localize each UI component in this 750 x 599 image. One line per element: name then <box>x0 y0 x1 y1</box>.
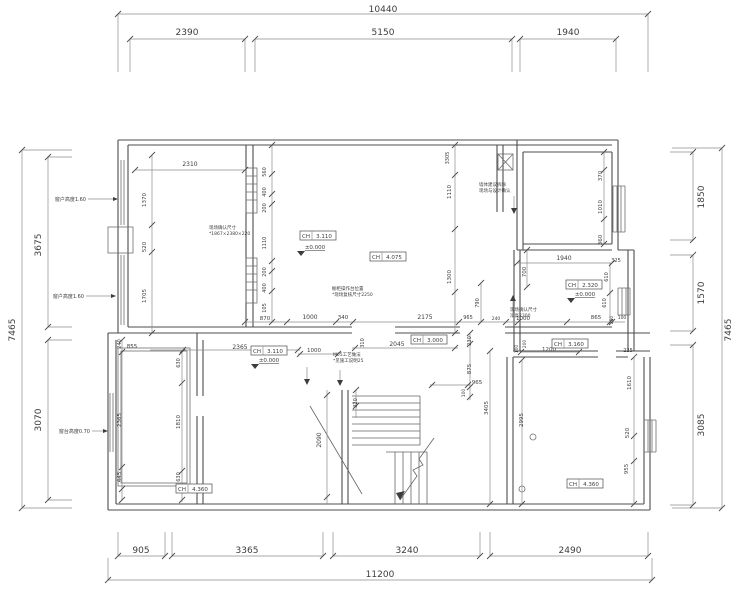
ch-label-prefix: CH <box>253 349 261 355</box>
dim-label: 790 <box>475 298 481 308</box>
dim-label: 1110 <box>262 237 268 250</box>
ch-label-value: 3.110 <box>316 234 332 240</box>
dim-label: 1850 <box>697 185 707 208</box>
dim-label: 610 <box>604 272 610 282</box>
dim-label: 1300 <box>447 270 453 284</box>
callout-text: 窗户高度1.60 <box>53 293 84 300</box>
level-mark-text: ±0.000 <box>259 358 280 364</box>
dim-label: 905 <box>132 546 149 556</box>
dim-label: 520 <box>142 241 148 252</box>
note-text: 墙体建议拆除 <box>479 181 506 188</box>
dim-label: 360 <box>598 234 604 245</box>
dim-label: 7465 <box>8 319 18 342</box>
dim-label: 855 <box>127 344 138 350</box>
callout-text: 窗户高度1.60 <box>55 196 86 203</box>
note-text: *见施工说明25 <box>333 357 364 364</box>
dim-label: 560 <box>262 167 268 177</box>
window-lines <box>110 160 656 452</box>
dim-label: 3085 <box>697 414 707 437</box>
note-text: 现场确认尺寸 <box>510 306 537 313</box>
dim-label: 870 <box>260 316 271 322</box>
dim-label: 7465 <box>724 319 734 342</box>
dim-label: 400 <box>262 187 268 197</box>
dim-label: 2490 <box>559 546 582 556</box>
dim-label: 965 <box>472 380 483 386</box>
dim-label: 3305 <box>445 152 451 165</box>
callout-text: 窗台高度0.70 <box>59 428 90 435</box>
note-text: 橱柜操作台位置 <box>332 285 364 292</box>
dim-label: 325 <box>611 258 621 264</box>
ceiling-height-labels-layer: CH3.110CH4.075CH2.320CH3.000CH3.110CH3.1… <box>176 231 603 493</box>
dim-label: 1370 <box>142 193 148 207</box>
flue-box-bottom <box>246 258 257 303</box>
ch-label-value: 3.160 <box>568 342 584 348</box>
notes-layer: 现场确认尺寸*1867×2380×220橱柜操作台位置*现场复核尺寸2250墙体… <box>209 181 537 364</box>
dim-label: 310 <box>360 338 366 348</box>
floor-plan-svg: 1044023905150194090533653240249011200746… <box>0 0 750 599</box>
dim-label: 200 <box>262 203 268 213</box>
ch-label-prefix: CH <box>372 255 380 261</box>
dim-label: 100 <box>514 345 520 354</box>
dim-label: 875 <box>467 363 473 374</box>
ch-label-prefix: CH <box>413 338 421 344</box>
dim-label: 2365 <box>117 413 123 427</box>
dim-label: 320 <box>353 398 359 408</box>
level-mark-text: ±0.000 <box>575 292 596 298</box>
dim-label: 2090 <box>316 432 323 447</box>
windows-layer <box>108 154 656 492</box>
dim-label: 2045 <box>389 341 404 348</box>
dim-label: 630 <box>176 472 182 482</box>
shaft-cross <box>498 154 513 170</box>
level-mark-text: ±0.000 <box>305 245 326 251</box>
dim-label: 1940 <box>556 255 571 262</box>
dim-label: 2995 <box>519 413 525 427</box>
dim-label: 3240 <box>396 546 419 556</box>
dim-label: 2175 <box>417 314 432 321</box>
dim-label: 225 <box>623 348 633 354</box>
dim-label: 105 <box>262 303 268 313</box>
note-text: M05工艺做法 <box>333 351 361 358</box>
note-text: *1867×2380×220 <box>209 231 250 237</box>
dim-label: 1000 <box>302 314 317 321</box>
ch-label-prefix: CH <box>569 482 577 488</box>
dim-label: 610 <box>602 298 608 308</box>
dim-label: 865 <box>591 315 602 321</box>
dim-label: 100 <box>461 389 467 398</box>
dim-label: 3675 <box>34 234 44 257</box>
dim-label: 700 <box>522 266 528 277</box>
dim-label: 2390 <box>176 28 199 38</box>
dim-label: 3365 <box>236 546 259 556</box>
dim-label: 200 <box>262 267 268 277</box>
ch-label-value: 3.110 <box>267 349 283 355</box>
pier-box <box>108 227 133 253</box>
level-mark-triangle <box>567 298 575 303</box>
note-text: 现场与设计确认 <box>479 187 511 194</box>
dim-label: 200 <box>522 340 528 349</box>
ch-label-value: 4.360 <box>583 482 599 488</box>
stair-treads <box>310 396 434 504</box>
dim-label: 445 <box>117 471 123 482</box>
note-text: 净高2300 <box>510 312 531 319</box>
dim-label: 1570 <box>697 281 707 304</box>
callout-arrowhead <box>111 294 116 298</box>
ch-label-value: 4.075 <box>386 255 402 261</box>
dim-label: 1610 <box>627 376 633 390</box>
dim-label: 100 <box>618 315 627 321</box>
dim-label: 1000 <box>307 348 321 354</box>
wall-lines <box>108 140 650 510</box>
callout-arrowhead <box>103 429 108 433</box>
ch-label-value: 2.320 <box>582 283 598 289</box>
dim-label: 5150 <box>372 28 395 38</box>
floor-plan-page: 1044023905150194090533653240249011200746… <box>0 0 750 599</box>
ch-label-prefix: CH <box>302 234 310 240</box>
staircase <box>310 396 434 504</box>
ch-label-value: 3.000 <box>427 338 443 344</box>
down-arrowhead <box>337 380 343 386</box>
ch-label-value: 4.360 <box>192 487 208 493</box>
dim-label: 240 <box>492 316 501 322</box>
note-text: *现场复核尺寸2250 <box>332 291 373 298</box>
dim-label: 630 <box>176 358 182 368</box>
dim-label: 240 <box>117 339 123 349</box>
ch-label-prefix: CH <box>554 342 562 348</box>
callout-arrowhead <box>113 197 118 201</box>
level-mark-triangle <box>251 364 259 369</box>
level-mark-triangle <box>297 251 305 256</box>
walls-layer <box>108 140 650 510</box>
flue-box-top <box>246 168 257 213</box>
dim-label: 965 <box>463 315 473 321</box>
up-arrowhead <box>510 295 516 301</box>
dim-label: 520 <box>625 427 631 438</box>
dim-label: 370 <box>598 170 604 181</box>
dim-label: 340 <box>338 315 349 321</box>
column-circle <box>530 434 536 440</box>
down-arrowhead <box>304 379 310 385</box>
dim-label: 1940 <box>557 28 580 38</box>
ch-label-prefix: CH <box>178 487 186 493</box>
dim-label: 2310 <box>182 161 197 168</box>
note-text: 现场确认尺寸 <box>209 224 236 231</box>
dim-label: 3070 <box>34 408 44 431</box>
ch-label-prefix: CH <box>568 283 576 289</box>
dim-label: 250 <box>609 316 615 325</box>
dim-label: 955 <box>624 463 630 474</box>
dim-label: 1110 <box>447 185 453 199</box>
dim-label: 1810 <box>176 415 182 429</box>
down-arrowhead <box>511 208 517 214</box>
dim-label: 1705 <box>142 289 148 303</box>
dim-label: 10440 <box>369 5 398 15</box>
dim-label: 230 <box>467 336 473 346</box>
dim-label: 400 <box>262 283 268 293</box>
dim-label: 2365 <box>232 344 247 351</box>
dim-label: 11200 <box>366 570 395 580</box>
dim-label: 1010 <box>598 200 604 214</box>
dim-label: 3405 <box>484 401 490 415</box>
